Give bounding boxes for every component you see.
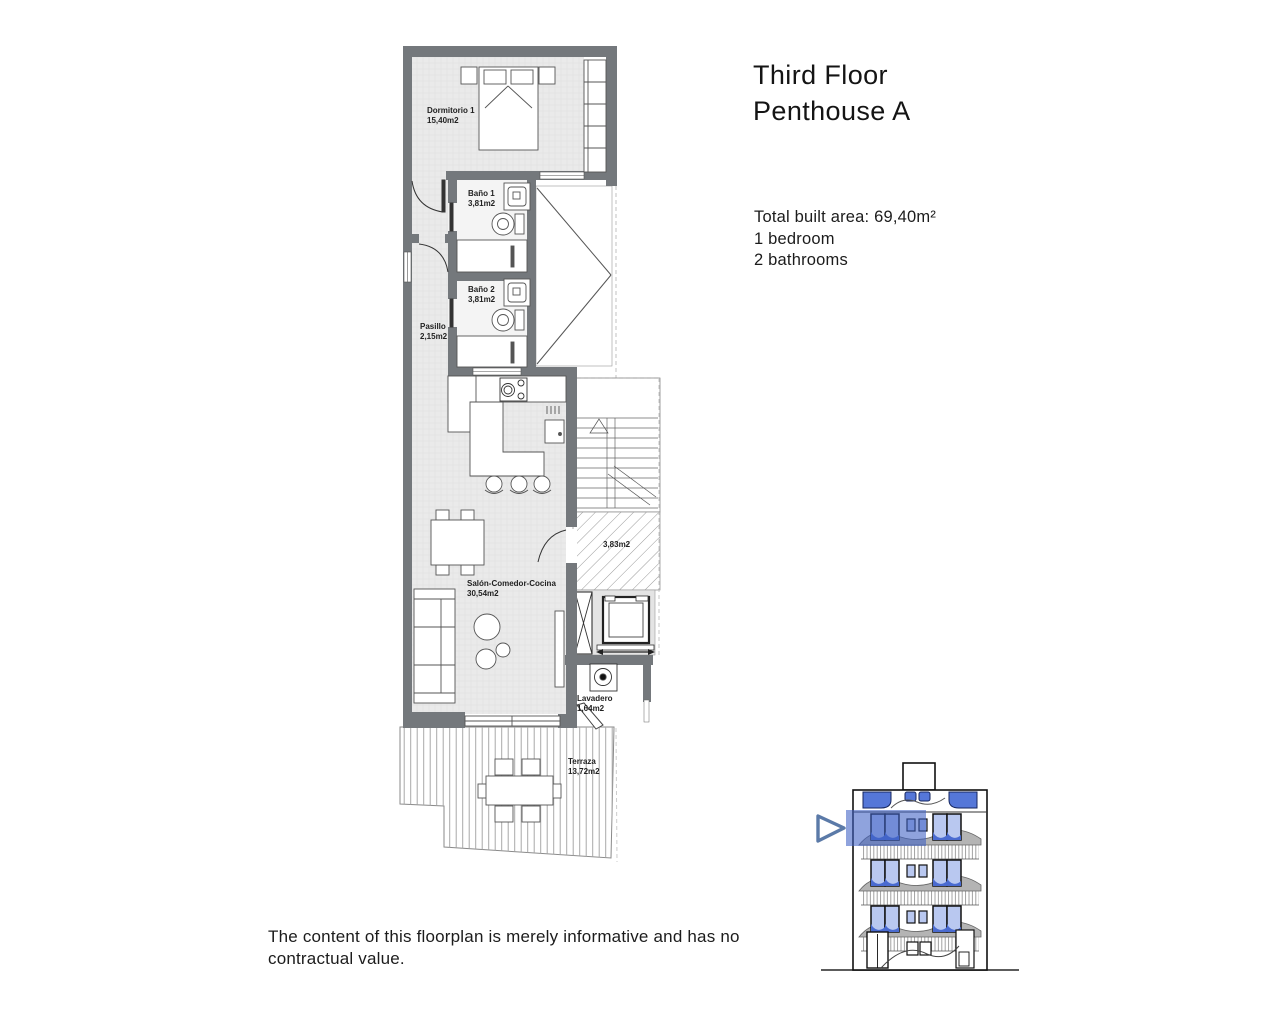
building-elevation: [815, 756, 1025, 978]
unit-summary: Total built area: 69,40m² 1 bedroom 2 ba…: [754, 207, 936, 272]
dining-table: [431, 510, 484, 575]
stool: [511, 476, 527, 492]
stool: [486, 476, 502, 492]
nightstand-right: [539, 67, 555, 84]
coffee-table: [476, 649, 496, 669]
stairwell: [573, 378, 660, 512]
room-label-stair-area: 3,83m2: [603, 540, 630, 550]
roof-structure: [903, 763, 935, 790]
room-label-salon: Salón-Comedor-Cocina 30,54m2: [467, 579, 556, 598]
title-line-1: Third Floor: [753, 57, 911, 93]
bedroom-door-leaf: [442, 180, 445, 212]
disclaimer-text: The content of this floorplan is merely …: [268, 926, 773, 970]
room-label-bano1: Baño 1 3,81m2: [468, 189, 495, 208]
tv-bench: [555, 611, 564, 687]
wardrobe: [584, 60, 606, 172]
floorplan-page: Dormitorio 1 15,40m2 Baño 1 3,81m2 Baño …: [0, 0, 1280, 1024]
bed: [479, 67, 538, 150]
terrace-sliding-door: [465, 716, 560, 726]
room-label-dormitorio: Dormitorio 1 15,40m2: [427, 106, 475, 125]
title-line-2: Penthouse A: [753, 93, 911, 129]
bath2-door-leaf: [450, 299, 453, 327]
room-label-bano2: Baño 2 3,81m2: [468, 285, 495, 304]
room-label-pasillo: Pasillo 2,15m2: [420, 322, 447, 341]
bath1-door-leaf: [450, 203, 453, 231]
bathroom-count: 2 bathrooms: [754, 250, 936, 272]
room-label-terraza: Terraza 13,72m2: [568, 757, 600, 776]
sofa: [414, 589, 455, 703]
page-title: Third Floor Penthouse A: [753, 57, 911, 129]
terrace: [400, 727, 614, 858]
floor-pointer-icon: [818, 816, 844, 841]
room-label-lavadero: Lavadero 1,64m2: [577, 694, 613, 713]
third-floor-highlight: [846, 810, 926, 846]
stool: [534, 476, 550, 492]
bedroom-count: 1 bedroom: [754, 229, 936, 251]
coffee-table: [474, 614, 500, 640]
total-built-area: Total built area: 69,40m²: [754, 207, 936, 229]
washing-machine: [590, 664, 617, 691]
coffee-table: [496, 643, 510, 657]
floorplan-drawing: [395, 40, 667, 866]
nightstand-left: [461, 67, 477, 84]
hatched-area: [573, 512, 660, 590]
